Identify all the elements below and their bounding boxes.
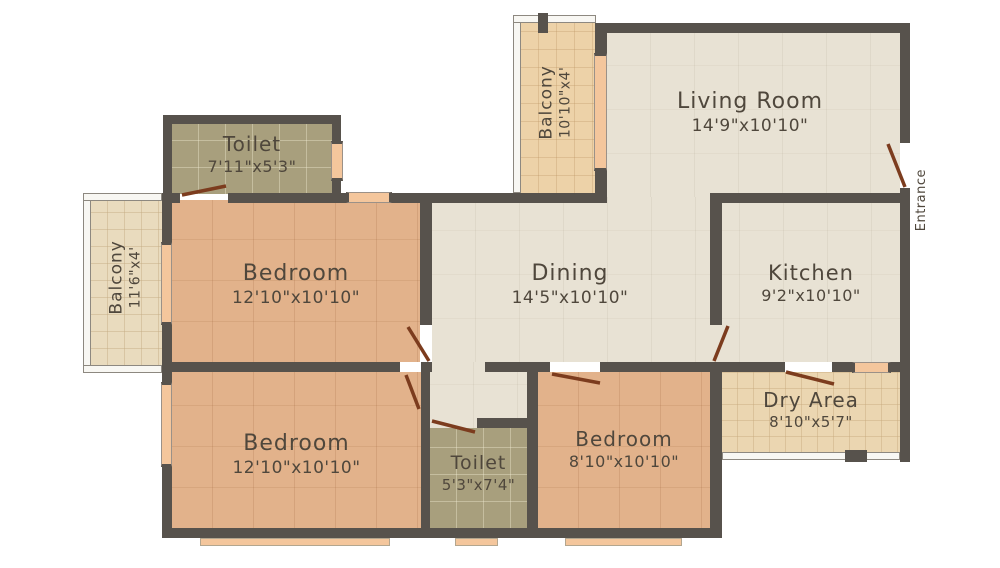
room-name: Bedroom: [538, 427, 710, 452]
bedroom-3-label: Bedroom 8'10"x10'10": [538, 427, 710, 472]
bedroom-3-door: [552, 374, 600, 383]
room-name: Toilet: [430, 452, 527, 476]
room-dims: 8'10"x10'10": [538, 452, 710, 472]
bedroom-1-door: [408, 327, 429, 361]
bedroom-2-label: Bedroom 12'10"x10'10": [172, 430, 421, 479]
room-name: Dining: [440, 260, 700, 288]
room-dims: 9'2"x10'10": [722, 286, 900, 306]
room-name: Bedroom: [172, 260, 420, 288]
room-dims: 11'6"x4': [128, 217, 146, 337]
toilet-1-label: Toilet 7'11"x5'3": [172, 132, 332, 177]
room-name: Dry Area: [722, 388, 900, 413]
room-dims: 7'11"x5'3": [172, 157, 332, 177]
room-name: Bedroom: [172, 430, 421, 458]
dry-area-door: [786, 372, 834, 384]
entrance-text: Entrance: [914, 130, 930, 270]
floor-plan: Toilet 7'11"x5'3" Balcony 10'10"x4' Livi…: [0, 0, 1000, 568]
kitchen-door: [714, 326, 728, 361]
room-dims: 14'9"x10'10": [600, 116, 900, 137]
room-name: Balcony: [107, 217, 128, 337]
balcony-left-label: Balcony 11'6"x4': [107, 217, 146, 337]
dining-label: Dining 14'5"x10'10": [440, 260, 700, 309]
room-name: Toilet: [172, 132, 332, 157]
toilet-2-label: Toilet 5'3"x7'4": [430, 452, 527, 495]
room-name: Balcony: [537, 42, 558, 162]
toilet-1-door: [182, 186, 226, 195]
balcony-top-label: Balcony 10'10"x4': [537, 42, 576, 162]
room-dims: 5'3"x7'4": [430, 476, 527, 495]
room-dims: 10'10"x4': [558, 42, 576, 162]
toilet-2-door: [432, 421, 475, 432]
room-dims: 12'10"x10'10": [172, 458, 421, 479]
entrance-door: [888, 144, 905, 187]
bedroom-1-label: Bedroom 12'10"x10'10": [172, 260, 420, 309]
room-dims: 12'10"x10'10": [172, 288, 420, 309]
room-dims: 8'10"x5'7": [722, 413, 900, 432]
dry-area-label: Dry Area 8'10"x5'7": [722, 388, 900, 432]
entrance-label: Entrance: [914, 130, 930, 270]
room-name: Kitchen: [722, 260, 900, 286]
room-name: Living Room: [600, 88, 900, 116]
living-room-label: Living Room 14'9"x10'10": [600, 88, 900, 137]
bedroom-2-door: [406, 375, 419, 409]
room-dims: 14'5"x10'10": [440, 288, 700, 309]
kitchen-label: Kitchen 9'2"x10'10": [722, 260, 900, 306]
